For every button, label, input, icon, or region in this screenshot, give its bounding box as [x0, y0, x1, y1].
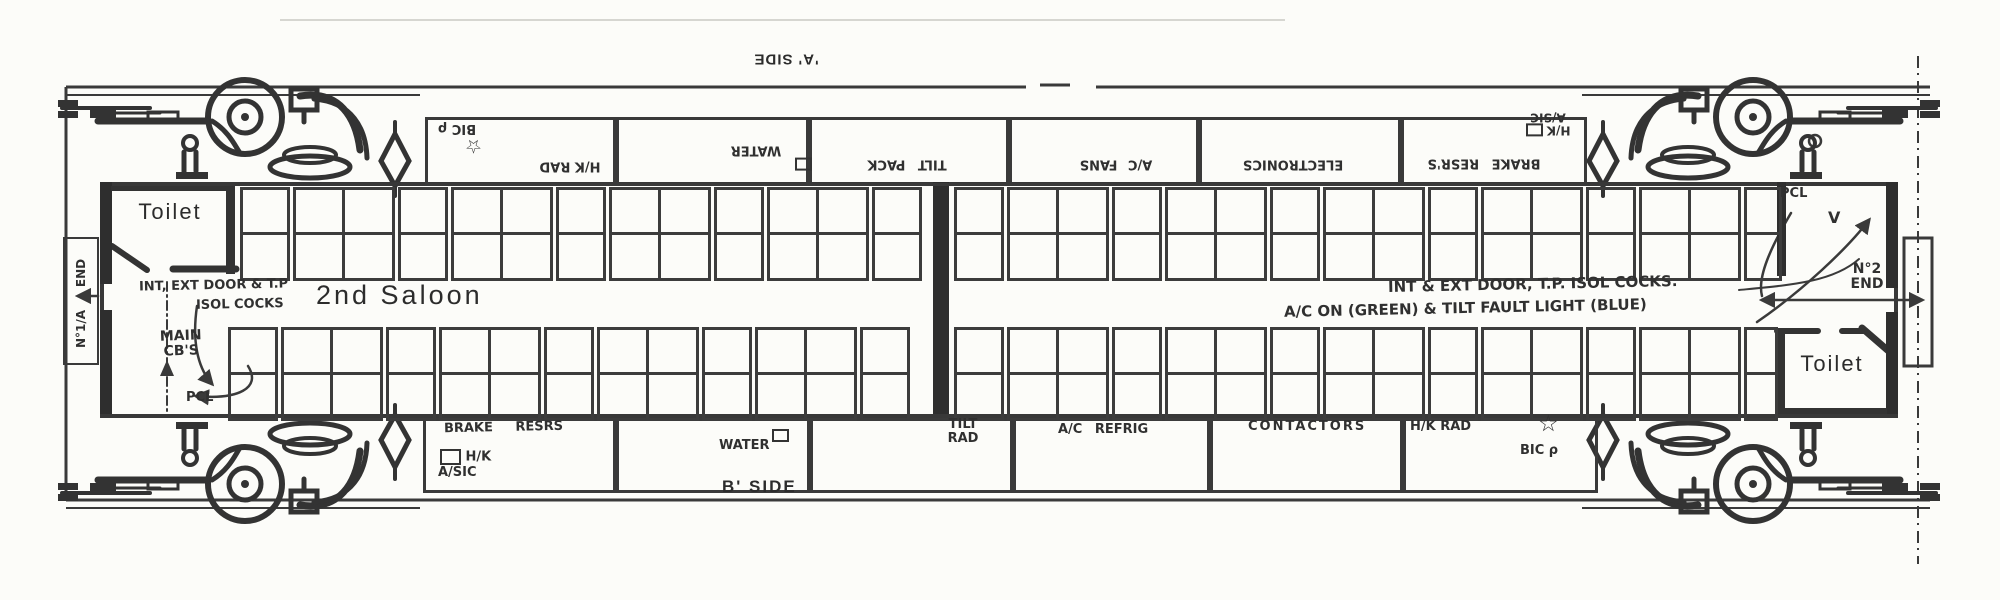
right-end-wall-lower [1886, 312, 1898, 414]
seat-bay [1639, 327, 1741, 421]
v-mark: V [1828, 209, 1840, 227]
seat-bay [451, 187, 553, 281]
seat-bay [1270, 327, 1320, 421]
bogie-sketch-bottom-right [1589, 405, 1940, 521]
equipment-top-ac-fans-label: A/C FANS [1062, 156, 1170, 170]
seat-bay [872, 187, 922, 281]
seat-divider-h [546, 372, 592, 375]
seat-bay [702, 327, 752, 421]
seat-bay [1481, 327, 1583, 421]
end-1-marker-box: END N°1/A [63, 237, 99, 365]
seat-divider-h [1588, 232, 1634, 235]
equipment-top-tilt-pack-label: TILT PACK [846, 156, 968, 170]
bogie-sketch-top-right [1589, 80, 1940, 196]
seat-bay [1165, 327, 1267, 421]
toilet-right-label: Toilet [1784, 352, 1880, 376]
seat-bay [1481, 187, 1583, 281]
carriage-layout-diagram: Toilet Toilet END N°1/A ☆ BIC ρ H/K RAD … [0, 0, 2000, 600]
seat-bay [1586, 187, 1636, 281]
equipment-top-brake-resrs-label: BRAKE RESR'S [1410, 155, 1558, 169]
seat-bay [293, 187, 395, 281]
seat-bay [1744, 187, 1782, 281]
seat-divider-h [230, 372, 276, 375]
seat-divider-h [1746, 372, 1776, 375]
seat-divider-v [804, 329, 807, 419]
end-2-marker: N°2 END [1844, 262, 1890, 293]
equipment-top-bic-label: ☆ BIC ρ [428, 121, 486, 156]
seat-divider-h [1430, 372, 1476, 375]
equipment-box-top-4 [1006, 117, 1202, 186]
seat-divider-v [1530, 189, 1533, 279]
bogie-sketch-top-left [58, 80, 409, 196]
end-1-word-upper: END [74, 259, 88, 287]
equipment-bottom-hk-rad-label: H/K RAD [1410, 420, 1471, 434]
seat-bay [1744, 327, 1778, 421]
seat-bay [860, 327, 910, 421]
seat-divider-h [1430, 232, 1476, 235]
seat-bay [1323, 187, 1425, 281]
left-end-wall-lower [100, 310, 112, 414]
seat-divider-v [658, 189, 661, 279]
equipment-top-hk-rad-label: H/K RAD [522, 158, 618, 172]
seat-divider-v [1214, 189, 1217, 279]
a-side-label: 'A' SIDE [740, 50, 832, 67]
seat-divider-v [1688, 329, 1691, 419]
seat-bay [1639, 187, 1741, 281]
square-icon [440, 449, 461, 465]
seat-divider-h [874, 232, 920, 235]
seat-divider-h [400, 232, 446, 235]
seat-bay [228, 327, 278, 421]
seat-bay [281, 327, 383, 421]
seat-divider-v [1372, 329, 1375, 419]
seat-bay [1007, 187, 1109, 281]
seat-bay [755, 327, 857, 421]
seat-bay [954, 187, 1004, 281]
seat-divider-v [1214, 329, 1217, 419]
seat-divider-v [1372, 189, 1375, 279]
seat-bay [386, 327, 436, 421]
centre-partition [933, 182, 949, 414]
toilet-left-label: Toilet [118, 200, 222, 224]
seat-divider-h [862, 372, 908, 375]
end-1-word-lower: N°1/A [74, 310, 88, 348]
equipment-top-hk-asic-label: H/K A/SIC [1512, 110, 1584, 136]
seat-divider-h [1114, 232, 1160, 235]
saloon-label: 2nd Saloon [316, 281, 483, 311]
seat-divider-v [500, 189, 503, 279]
seat-bay [544, 327, 594, 421]
seat-bay [954, 327, 1004, 421]
equipment-bottom-contactors-label: CONTACTORS [1248, 420, 1366, 434]
star-icon: ☆ [428, 135, 482, 156]
seat-divider-v [1056, 189, 1059, 279]
seat-bay [1007, 327, 1109, 421]
seat-divider-h [1746, 232, 1780, 235]
equipment-bottom-water-label: WATER [719, 429, 789, 453]
seat-bay [597, 327, 699, 421]
square-icon [795, 158, 812, 171]
seat-bay [1428, 327, 1478, 421]
seat-divider-h [1272, 372, 1318, 375]
seat-bay [1586, 327, 1636, 421]
square-icon [1526, 123, 1543, 136]
seat-divider-v [646, 329, 649, 419]
seat-divider-v [1056, 329, 1059, 419]
seat-bay [767, 187, 869, 281]
pcl-note-left: PCL [186, 391, 213, 405]
seat-divider-h [242, 232, 288, 235]
seat-bay [556, 187, 606, 281]
seat-divider-h [704, 372, 750, 375]
main-cbs-note: MAIN CB'S [145, 328, 216, 361]
equipment-bottom-ac-refrig-label: A/C REFRIG [1058, 423, 1148, 437]
seat-bay [1112, 187, 1162, 281]
equipment-bottom-hk-label: H/K [440, 449, 491, 465]
equipment-bottom-bic-label: BIC ρ [1520, 444, 1558, 458]
seat-divider-v [342, 189, 345, 279]
seat-bay [714, 187, 764, 281]
equipment-box-top-3 [806, 117, 1012, 186]
seat-divider-h [1114, 372, 1160, 375]
seat-divider-v [488, 329, 491, 419]
seat-divider-h [1588, 372, 1634, 375]
seat-divider-h [1272, 232, 1318, 235]
seat-bay [1428, 187, 1478, 281]
seat-divider-v [1688, 189, 1691, 279]
square-icon [772, 429, 789, 442]
seat-bay [1270, 187, 1320, 281]
pcl-note-right: PCL [1780, 187, 1807, 201]
seat-divider-h [956, 232, 1002, 235]
seat-divider-h [388, 372, 434, 375]
left-door-note-line2: ISOL COCKS [196, 297, 284, 313]
bogie-sketch-bottom-left [58, 405, 409, 521]
equipment-top-water-label: WATER [700, 142, 812, 171]
seat-bay [439, 327, 541, 421]
seat-divider-h [558, 232, 604, 235]
equipment-box-top-5 [1196, 117, 1404, 186]
seat-divider-v [330, 329, 333, 419]
seat-bay [609, 187, 711, 281]
seat-bay [398, 187, 448, 281]
seat-divider-h [716, 232, 762, 235]
equipment-top-electronics-label: ELECTRONICS [1228, 156, 1358, 170]
equipment-bottom-brake-resrs-label: BRAKE RESRS [444, 420, 563, 437]
seat-bay [1112, 327, 1162, 421]
seat-bay [240, 187, 290, 281]
b-side-label: B' SIDE [722, 478, 797, 497]
seat-divider-v [816, 189, 819, 279]
star-icon: ☆ [1538, 412, 1559, 437]
seat-divider-v [1530, 329, 1533, 419]
seat-divider-h [956, 372, 1002, 375]
seat-bay [1323, 327, 1425, 421]
seat-bay [1165, 187, 1267, 281]
equipment-bottom-asic-label: A/SIC [438, 466, 477, 480]
equipment-bottom-tilt-rad-label: TILT RAD [936, 418, 990, 447]
